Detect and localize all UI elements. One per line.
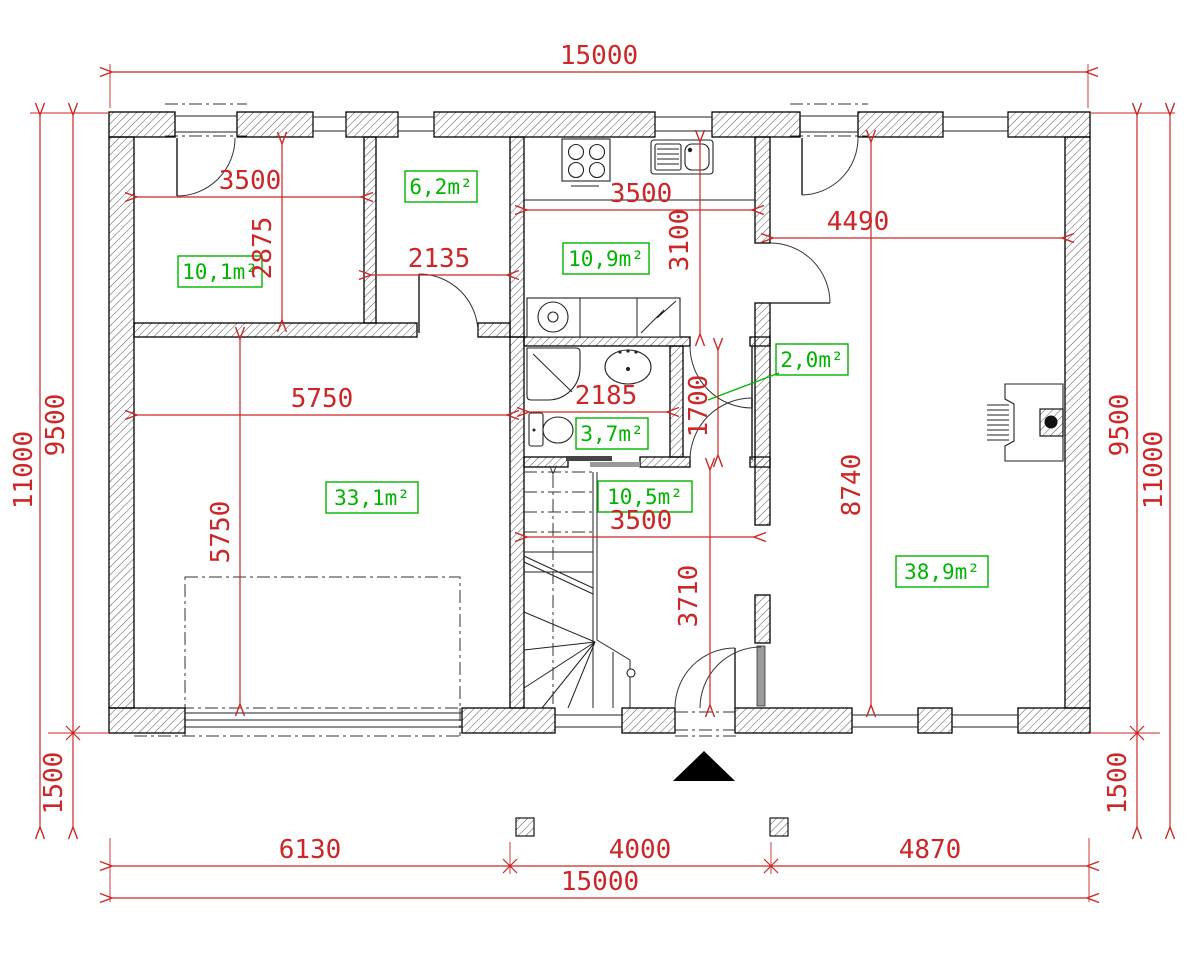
dim-top-width: 15000 [110,41,1088,108]
window-kitchen [655,113,712,136]
svg-text:3100: 3100 [665,209,695,272]
area-label-living-small: 33,1m² [326,482,418,513]
dim-left-total: 11000 [9,115,40,827]
area-label-kitchen: 10,9m² [563,243,649,274]
svg-text:3500: 3500 [610,179,673,209]
svg-text:5750: 5750 [206,501,236,564]
window-room62 [398,113,434,136]
toilet-icon [529,413,573,446]
svg-text:3500: 3500 [219,166,282,196]
floor-plan-drawing: 10,1m² 6,2m² 10,9m² 2,0m² 3,7m² 33,1m² 1… [0,0,1200,960]
dim-right-porch: 1500 [1103,733,1137,827]
window-living-top [943,113,1008,136]
svg-text:9500: 9500 [41,394,71,457]
svg-text:33,1m²: 33,1m² [334,486,410,510]
dim-left-porch: 1500 [39,733,73,827]
door-room62 [419,274,478,333]
washbasin-icon [605,349,651,384]
dim-right-total: 11000 [1139,115,1170,827]
kitchen-sink-icon [651,140,713,174]
window-big-terrace [185,713,462,727]
area-label-room62: 6,2m² [405,171,477,202]
svg-text:15000: 15000 [560,41,638,71]
entrance-marker-icon [673,751,735,781]
window-living-bottom-2 [952,715,1018,727]
washer-and-counter [527,298,680,337]
dim-living-left-height: 5750 [206,339,240,704]
fireplace-icon [987,384,1063,461]
svg-text:1500: 1500 [39,752,69,815]
svg-text:6,2m²: 6,2m² [409,175,472,199]
balcony-door-living [800,116,858,195]
svg-text:1500: 1500 [1103,752,1133,815]
dim-left-main: 9500 [30,113,109,740]
shower-icon [527,348,580,400]
svg-text:2185: 2185 [575,381,638,411]
entrance-door [675,648,735,730]
windows [185,113,1018,727]
dim-living-right-width: 4490 [773,207,1062,238]
porch-post-left [516,818,534,836]
dim-kitchen-width: 3500 [527,179,752,210]
hob-icon [562,139,610,186]
dim-room101-width: 3500 [137,166,361,197]
svg-text:9500: 9500 [1105,394,1135,457]
window-living-bottom-1 [852,715,918,727]
svg-text:8740: 8740 [837,454,867,517]
svg-text:3500: 3500 [610,506,673,536]
svg-text:4490: 4490 [827,207,890,237]
svg-text:2875: 2875 [248,217,278,280]
floor-plan-sheet: 10,1m² 6,2m² 10,9m² 2,0m² 3,7m² 33,1m² 1… [0,0,1200,960]
svg-text:2,0m²: 2,0m² [780,348,843,372]
svg-text:38,9m²: 38,9m² [904,560,980,584]
svg-text:4000: 4000 [609,835,672,865]
dim-right-main: 9500 [1090,113,1175,740]
sliding-door-bathroom [566,456,640,467]
svg-text:3710: 3710 [674,565,704,628]
dim-living-left-width: 5750 [137,384,507,415]
svg-text:10,9m²: 10,9m² [568,247,644,271]
svg-text:2135: 2135 [408,244,471,274]
door-kitchen-living [770,243,830,303]
area-label-living-large: 38,9m² [896,556,988,587]
area-label-hall-small: 2,0m² [708,344,848,400]
kitchen-fixtures [524,139,755,337]
svg-text:1700: 1700 [684,375,714,438]
svg-text:11000: 11000 [1139,431,1169,509]
svg-text:15000: 15000 [561,867,639,897]
svg-text:6130: 6130 [279,835,342,865]
window-stairs [555,715,622,727]
dim-hall-small-height: 1700 [684,350,718,455]
svg-text:4870: 4870 [899,835,962,865]
dim-room62-width: 2135 [371,244,507,275]
dim-bottom-total: 15000 [112,867,1087,898]
dim-hallway-width: 3500 [527,506,754,537]
svg-text:5750: 5750 [291,384,354,414]
svg-text:10,1m²: 10,1m² [182,260,258,284]
window-room101 [313,113,346,136]
porch-post-right [770,818,788,836]
area-label-bathroom: 3,7m² [576,418,648,449]
svg-text:3,7m²: 3,7m² [580,422,643,446]
svg-text:11000: 11000 [9,431,39,509]
